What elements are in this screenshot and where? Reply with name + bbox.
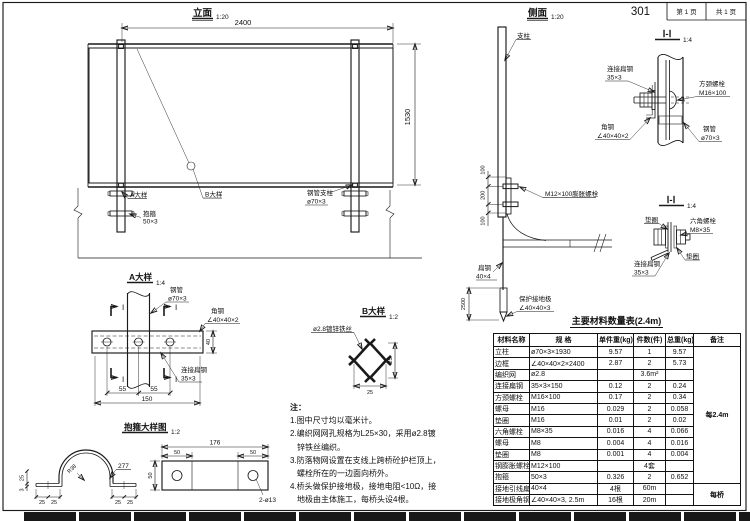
- detail-a-strip-label: 连接扁钢: [181, 365, 208, 374]
- cell: 20m: [634, 495, 666, 506]
- hoop-dim-50b: 50: [250, 450, 256, 456]
- elevation-post-label: 钢管支柱: [307, 188, 334, 197]
- sheet-number: 301: [631, 6, 650, 18]
- col-header: 备注: [694, 334, 741, 347]
- cell: 2: [634, 381, 666, 392]
- cell: 4: [634, 449, 666, 460]
- side-view: 侧面 1:20 支柱 100 200 100 M12×100膨胀螺栓: [461, 7, 612, 321]
- cell: 0.24: [666, 381, 694, 392]
- cell: 0.001: [598, 449, 634, 460]
- cell: 0.016: [666, 438, 694, 449]
- cell: 2: [634, 403, 666, 414]
- cell: [666, 495, 694, 506]
- table-header-row: 材料名称 规 格 单件重(kg) 件数(件) 总重(kg) 备注: [494, 334, 741, 347]
- detail-b-dim-h: 25: [388, 357, 394, 363]
- hoop-dim-25d: 25: [127, 500, 133, 506]
- cell: 0.326: [598, 472, 634, 483]
- cell: 钢膨胀螺栓: [494, 460, 530, 471]
- hoop-scale: 1:2: [171, 429, 180, 436]
- side-scale: 1:20: [551, 14, 564, 21]
- detail-a-scale: 1:4: [156, 280, 165, 287]
- hoop-dim-25c: 25: [115, 500, 121, 506]
- note-line: 2.编织网网孔规格为L25×30，采用ø2.8镀: [290, 427, 495, 440]
- cell: 0.066: [666, 426, 694, 437]
- section-2-view: Ⅰ-Ⅰ 1:4 垫圈 六角螺栓 M8×35 垫圈 连接扁钢 35×3: [632, 195, 717, 277]
- section-2-bolt-label: 六角螺栓: [690, 216, 717, 225]
- cell: M16: [530, 403, 598, 414]
- materials-table-title: 主要材料数量表(2.4m): [493, 314, 740, 327]
- detail-a-dim-150: 150: [142, 396, 153, 403]
- note-line: 地极由主体施工，每桥头设4根。: [297, 493, 495, 506]
- cell: 4: [634, 426, 666, 437]
- cell: 50×3: [530, 472, 598, 483]
- cell: M8×35: [530, 426, 598, 437]
- section-1-angle-label: 角钢: [601, 122, 615, 131]
- hoop-radius-label: R38: [67, 464, 78, 475]
- cell: [598, 369, 634, 380]
- cell: 1: [634, 347, 666, 358]
- hoop-length-label: 277: [118, 463, 129, 470]
- hoop-holes-label: 2-ø13: [259, 497, 276, 504]
- side-flat-steel-label: 扁钢: [478, 263, 492, 272]
- cell: [666, 460, 694, 471]
- section-1-strip-spec: 35×3: [607, 75, 622, 82]
- materials-table: 材料名称 规 格 单件重(kg) 件数(件) 总重(kg) 备注 立柱 ø70×…: [493, 333, 741, 506]
- detail-a-view: A大样 1:4 Ⅰ Ⅰ Ⅰ Ⅰ 钢管 ø70×3 角钢 ∠40×40×2 连接扁…: [92, 272, 240, 406]
- cell: 60m: [634, 483, 666, 494]
- cell: [666, 483, 694, 494]
- section-2-title: Ⅰ-Ⅰ: [667, 195, 676, 206]
- cell: ∠40×40×2×2400: [530, 358, 598, 369]
- cell: 5.73: [666, 358, 694, 369]
- cell: 4: [634, 438, 666, 449]
- section-1-angle-spec: ∠40×40×2: [597, 132, 629, 140]
- side-title: 侧面: [528, 7, 548, 19]
- cell: 0.058: [666, 403, 694, 414]
- cell: 40×4: [530, 483, 598, 494]
- elevation-dim-height: 1530: [403, 109, 412, 126]
- detail-b-scale: 1:2: [389, 314, 398, 321]
- cell: 六角螺栓: [494, 426, 530, 437]
- section-2-scale: 1:4: [687, 203, 696, 210]
- detail-a-dim-40: 40: [206, 339, 212, 345]
- cell: M12×100: [530, 460, 598, 471]
- cell: 9.57: [666, 347, 694, 358]
- section-1-bolt-spec: M16×100: [699, 90, 727, 97]
- section-1-pipe-label: 钢管: [703, 124, 717, 133]
- cell: M8: [530, 438, 598, 449]
- table-row: 立柱 ø70×3×1930 9.57 1 9.57 每2.4m: [494, 347, 741, 358]
- cell: 垫圈: [494, 415, 530, 426]
- section-1-bolt-label: 方颈螺栓: [699, 79, 726, 88]
- detail-b-wire-label: ø2.8镀锌铁丝: [313, 324, 353, 333]
- detail-a-section-mark: Ⅰ: [122, 303, 124, 312]
- hoop-dim-50h: 50: [148, 472, 154, 478]
- cell: 2: [634, 358, 666, 369]
- cell: 0.17: [598, 392, 634, 403]
- cell: 0.02: [666, 415, 694, 426]
- hoop-dim-side-3: 3: [20, 488, 26, 491]
- cell: 垫圈: [494, 449, 530, 460]
- section-1-pipe-spec: ø70×3: [701, 135, 720, 142]
- side-anchor-bolt-label: M12×100膨胀螺栓: [545, 189, 599, 198]
- cell: 0.029: [598, 403, 634, 414]
- cell: 35×3×150: [530, 381, 598, 392]
- elevation-detail-b-label: B大样: [205, 190, 223, 199]
- cell: 4根: [598, 483, 634, 494]
- cell: 立柱: [494, 347, 530, 358]
- side-flat-steel-spec: 40×4: [476, 274, 491, 281]
- col-header: 单件重(kg): [598, 334, 634, 347]
- cell: 边框: [494, 358, 530, 369]
- detail-a-pipe-label: 钢管: [170, 285, 184, 294]
- cell: 4套: [634, 460, 666, 471]
- elevation-title: 立面: [193, 7, 213, 19]
- cell: 0.004: [666, 449, 694, 460]
- cell: 螺母: [494, 438, 530, 449]
- section-1-title: Ⅰ-Ⅰ: [663, 29, 672, 40]
- side-post-label: 支柱: [517, 31, 531, 40]
- section-1-scale: 1:4: [683, 37, 692, 44]
- elevation-detail-a-label: A大样: [130, 190, 148, 199]
- detail-a-angle-spec: ∠40×40×2: [207, 316, 239, 324]
- cell: ∠40×40×3, 2.5m: [530, 495, 598, 506]
- side-ground-rod-label: 保护接地极: [519, 294, 552, 303]
- side-dim-100a: 100: [481, 165, 487, 174]
- detail-a-dim-55b: 55: [150, 386, 158, 393]
- note-line: 锌铁丝编织。: [297, 441, 495, 454]
- remark-cell: 每桥: [694, 483, 741, 506]
- sheet-pages-total-label: 共 1 页: [716, 7, 737, 16]
- detail-a-angle-label: 角钢: [211, 306, 225, 315]
- cell: M8: [530, 449, 598, 460]
- detail-b-dim-w: 25: [367, 390, 373, 396]
- col-header: 规 格: [530, 334, 598, 347]
- cell: 0.12: [598, 381, 634, 392]
- drawing-sheet: 301 第 1 页 共 1 页 立面 1:20 2400: [0, 0, 750, 521]
- cell: ø2.8: [530, 369, 598, 380]
- side-dim-200: 200: [481, 191, 487, 200]
- cell: 2: [634, 472, 666, 483]
- section-1-strip-label: 连接扁钢: [607, 64, 634, 73]
- hoop-dim-50a: 50: [174, 450, 180, 456]
- hoop-dim-176: 176: [210, 440, 221, 447]
- cell: ø70×3×1930: [530, 347, 598, 358]
- table-row: 接地引线扁钢 40×4 4根 60m 每桥: [494, 483, 741, 494]
- notes-title: 注：: [290, 401, 495, 414]
- section-2-strip-spec: 35×3: [634, 270, 649, 277]
- section-1-view: Ⅰ-Ⅰ 1:4 连接扁钢 35×3 方颈螺栓 M16×100 角钢 ∠40×40…: [595, 29, 730, 146]
- hoop-dim-25b: 25: [51, 500, 57, 506]
- side-dim-100b: 100: [481, 216, 487, 225]
- section-2-bolt-spec: M8×35: [690, 227, 710, 234]
- note-line: 螺栓所在的一边面向桥外。: [297, 467, 495, 480]
- cell: 接地极角钢: [494, 495, 530, 506]
- cell: 连接扁钢: [494, 381, 530, 392]
- detail-a-dim-55a: 55: [119, 386, 127, 393]
- side-ground-rod-spec: ∠40×40×3: [519, 304, 551, 312]
- section-2-washer-bottom-label: 垫圈: [686, 252, 699, 261]
- elevation-scale: 1:20: [216, 14, 229, 21]
- cell: [598, 460, 634, 471]
- cell: 16根: [598, 495, 634, 506]
- cell: 2.87: [598, 358, 634, 369]
- hoop-detail-view: 抱箍大样图 1:2 R38 277 25 25: [20, 422, 277, 506]
- elevation-hoop-label: 抱箍: [143, 209, 157, 218]
- note-line: 4.桥头做保护接地极，接地电阻<10Ω，接: [290, 480, 495, 493]
- cell: 0.004: [598, 438, 634, 449]
- detail-a-section-mark: Ⅰ: [175, 303, 177, 312]
- elevation-view: 立面 1:20 2400: [74, 7, 422, 258]
- hoop-title: 抱箍大样图: [124, 422, 167, 432]
- cell: M16: [530, 415, 598, 426]
- cell: M16×100: [530, 392, 598, 403]
- detail-a-strip-spec: 35×3: [181, 376, 196, 383]
- cell: 编织网: [494, 369, 530, 380]
- cell: 0.01: [598, 415, 634, 426]
- detail-a-section-mark: Ⅰ: [122, 375, 124, 384]
- cell: 2: [634, 392, 666, 403]
- cell: 抱箍: [494, 472, 530, 483]
- cell: 0.652: [666, 472, 694, 483]
- elevation-post-spec: ø70×3: [307, 199, 326, 206]
- cell: 9.57: [598, 347, 634, 358]
- cell: 0.34: [666, 392, 694, 403]
- cell: 3.6m²: [634, 369, 666, 380]
- side-dim-2500: 2500: [461, 298, 467, 310]
- col-header: 材料名称: [494, 334, 530, 347]
- cell: [666, 369, 694, 380]
- hoop-dim-25a: 25: [39, 500, 45, 506]
- detail-b-view: B大样 1:2 ø2.8镀锌铁丝 25 25: [311, 306, 398, 396]
- col-header: 件数(件): [634, 334, 666, 347]
- section-2-washer-top-label: 垫圈: [645, 215, 658, 224]
- col-header: 总重(kg): [666, 334, 694, 347]
- sheet-page-label: 第 1 页: [676, 7, 697, 16]
- remark-cell: 每2.4m: [694, 347, 741, 484]
- section-2-strip-label: 连接扁钢: [634, 259, 661, 268]
- cell: 螺母: [494, 403, 530, 414]
- sheet-bottom-titleblock-strip: [24, 512, 750, 521]
- notes-block: 注： 1.图中尺寸均以毫米计。 2.编织网网孔规格为L25×30，采用ø2.8镀…: [290, 401, 495, 507]
- cell: 2: [634, 415, 666, 426]
- note-line: 3.防落物网设置在支线上跨桥砼护栏顶上，: [290, 454, 495, 467]
- elevation-dim-width: 2400: [235, 18, 252, 27]
- cell: 0.016: [598, 426, 634, 437]
- detail-a-title: A大样: [129, 272, 153, 282]
- detail-b-title: B大样: [362, 306, 386, 316]
- cell: 接地引线扁钢: [494, 483, 530, 494]
- elevation-hoop-spec: 50×3: [143, 219, 158, 226]
- cell: 方颈螺栓: [494, 392, 530, 403]
- hoop-dim-side-25: 25: [20, 475, 26, 481]
- detail-a-pipe-spec: ø70×3: [168, 296, 187, 303]
- note-line: 1.图中尺寸均以毫米计。: [290, 414, 495, 427]
